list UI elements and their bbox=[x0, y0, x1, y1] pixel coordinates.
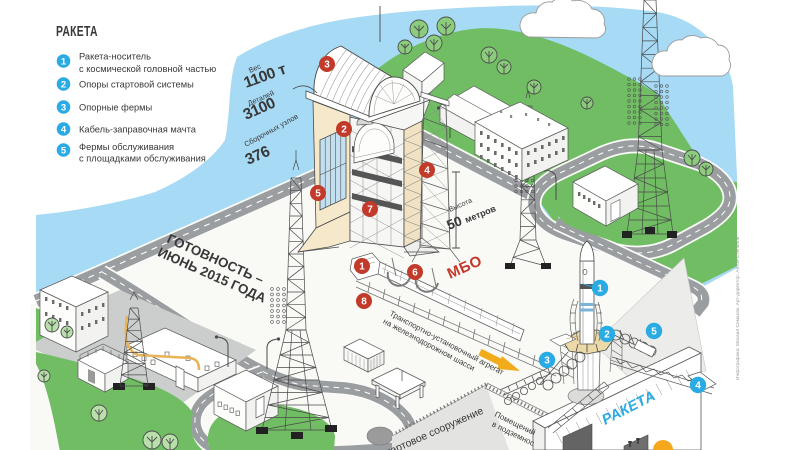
svg-text:2: 2 bbox=[61, 79, 66, 90]
svg-text:8: 8 bbox=[361, 297, 367, 308]
svg-text:5: 5 bbox=[315, 189, 321, 200]
svg-text:4: 4 bbox=[695, 381, 701, 392]
svg-text:3: 3 bbox=[61, 102, 66, 113]
svg-text:3: 3 bbox=[544, 356, 550, 367]
svg-text:6: 6 bbox=[412, 268, 418, 279]
svg-text:1: 1 bbox=[61, 56, 67, 67]
svg-text:3: 3 bbox=[324, 60, 330, 71]
svg-text:5: 5 bbox=[61, 145, 67, 156]
svg-text:Опорные фермы: Опорные фермы bbox=[79, 103, 153, 113]
svg-text:4: 4 bbox=[61, 124, 67, 135]
svg-text:2: 2 bbox=[604, 330, 610, 341]
svg-text:Ракета-носитель: Ракета-носитель bbox=[79, 52, 151, 62]
svg-text:РАКЕТА: РАКЕТА bbox=[56, 23, 98, 39]
svg-text:1: 1 bbox=[359, 262, 365, 273]
svg-text:Опоры стартовой системы: Опоры стартовой системы bbox=[79, 80, 194, 90]
svg-text:2: 2 bbox=[341, 125, 347, 136]
svg-text:с площадками обслуживания: с площадками обслуживания bbox=[79, 154, 206, 164]
svg-text:Фермы обслуживания: Фермы обслуживания bbox=[79, 142, 174, 152]
svg-text:1: 1 bbox=[597, 284, 603, 295]
svg-text:7: 7 bbox=[367, 205, 373, 216]
svg-text:Инфографика: Михаил Симаков. А: Инфографика: Михаил Симаков. Арт-директо… bbox=[735, 236, 741, 380]
svg-text:с космической головной частью: с космической головной частью bbox=[79, 64, 216, 74]
svg-text:5: 5 bbox=[651, 327, 657, 338]
svg-text:Кабель-заправочная мачта: Кабель-заправочная мачта bbox=[79, 125, 197, 135]
svg-text:4: 4 bbox=[424, 166, 430, 177]
